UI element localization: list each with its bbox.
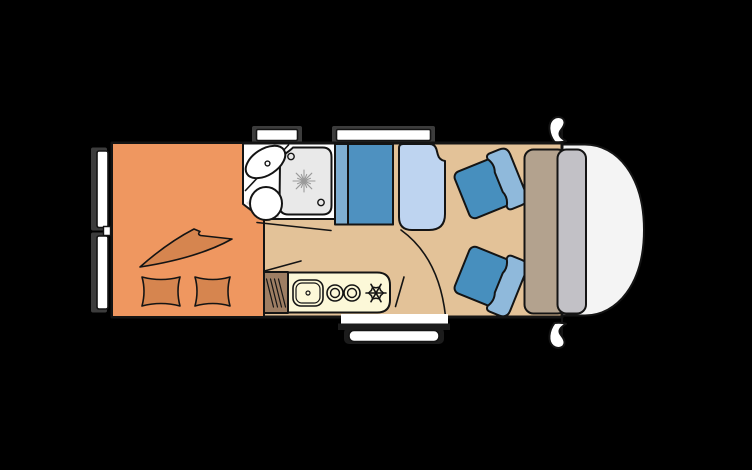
toilet: [250, 187, 282, 220]
window-latch: [104, 227, 111, 236]
rear-bed: [112, 143, 264, 317]
left-window-bottom: [97, 236, 108, 309]
dinette: [335, 144, 445, 230]
floor-plan-canvas: [0, 0, 752, 470]
shower-drain-starburst-icon: [293, 170, 315, 192]
rear-bed-area: [112, 143, 264, 317]
side-mirror-bottom: [549, 323, 566, 348]
top-window-dinette: [337, 130, 431, 141]
bench-seat: [348, 144, 393, 225]
kitchen: [264, 272, 390, 313]
left-window-top: [97, 151, 108, 228]
entry-door-opening: [341, 314, 448, 324]
bed-pillow-right: [195, 277, 230, 306]
entry-step: [349, 331, 439, 342]
bed-pillow-left: [142, 277, 180, 306]
floor-plan-svg: [0, 0, 752, 470]
roof-windows: [252, 126, 435, 144]
side-seat: [399, 144, 445, 230]
top-window-bathroom: [257, 130, 298, 141]
bathroom: [240, 139, 335, 220]
rear-left-windows: [91, 148, 111, 313]
side-mirror-top: [549, 117, 566, 142]
windscreen-band: [558, 150, 587, 314]
heater-cabinet: [264, 272, 288, 313]
entry-door: [338, 314, 450, 344]
